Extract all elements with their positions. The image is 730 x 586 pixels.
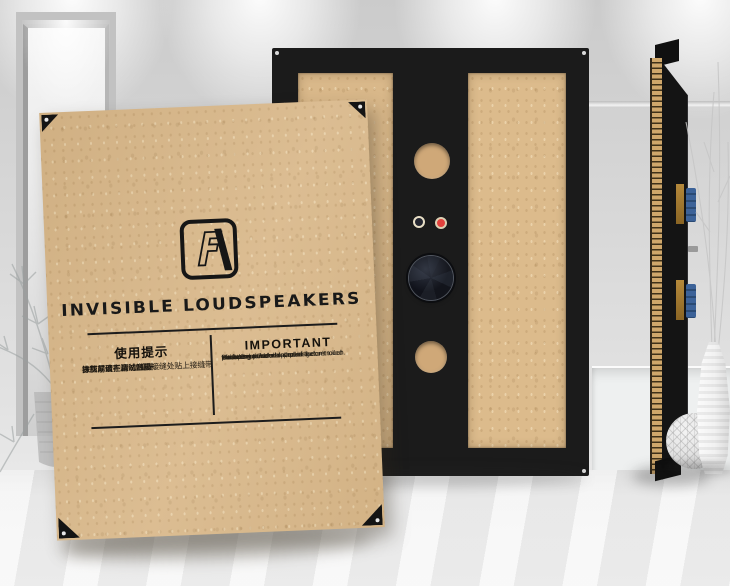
important-line: within 2mm.	[221, 353, 257, 363]
paper-sheen	[39, 99, 385, 540]
showroom-scene: INVISIBLE LOUDSPEAKERS 使用提示 IMPORTANT 抹灰…	[0, 0, 730, 586]
driver-hole-top	[414, 143, 450, 179]
niche-light-glow	[22, 20, 110, 110]
floor-shadow	[696, 464, 730, 476]
volume-knob	[409, 256, 453, 300]
driver-hole-bottom	[415, 341, 447, 373]
screw-hole	[582, 51, 586, 55]
instruction-sheet: INVISIBLE LOUDSPEAKERS 使用提示 IMPORTANT 抹灰…	[39, 99, 385, 540]
screw-hole	[582, 469, 586, 473]
screw-hole	[275, 51, 279, 55]
indicator-dot-black	[413, 216, 425, 228]
decor-branches	[662, 52, 730, 352]
kraft-window-right	[468, 73, 566, 448]
perforated-kraft-edge	[650, 58, 662, 474]
fa-monogram-logo-icon	[178, 215, 241, 281]
indicator-dot-red	[435, 217, 447, 229]
